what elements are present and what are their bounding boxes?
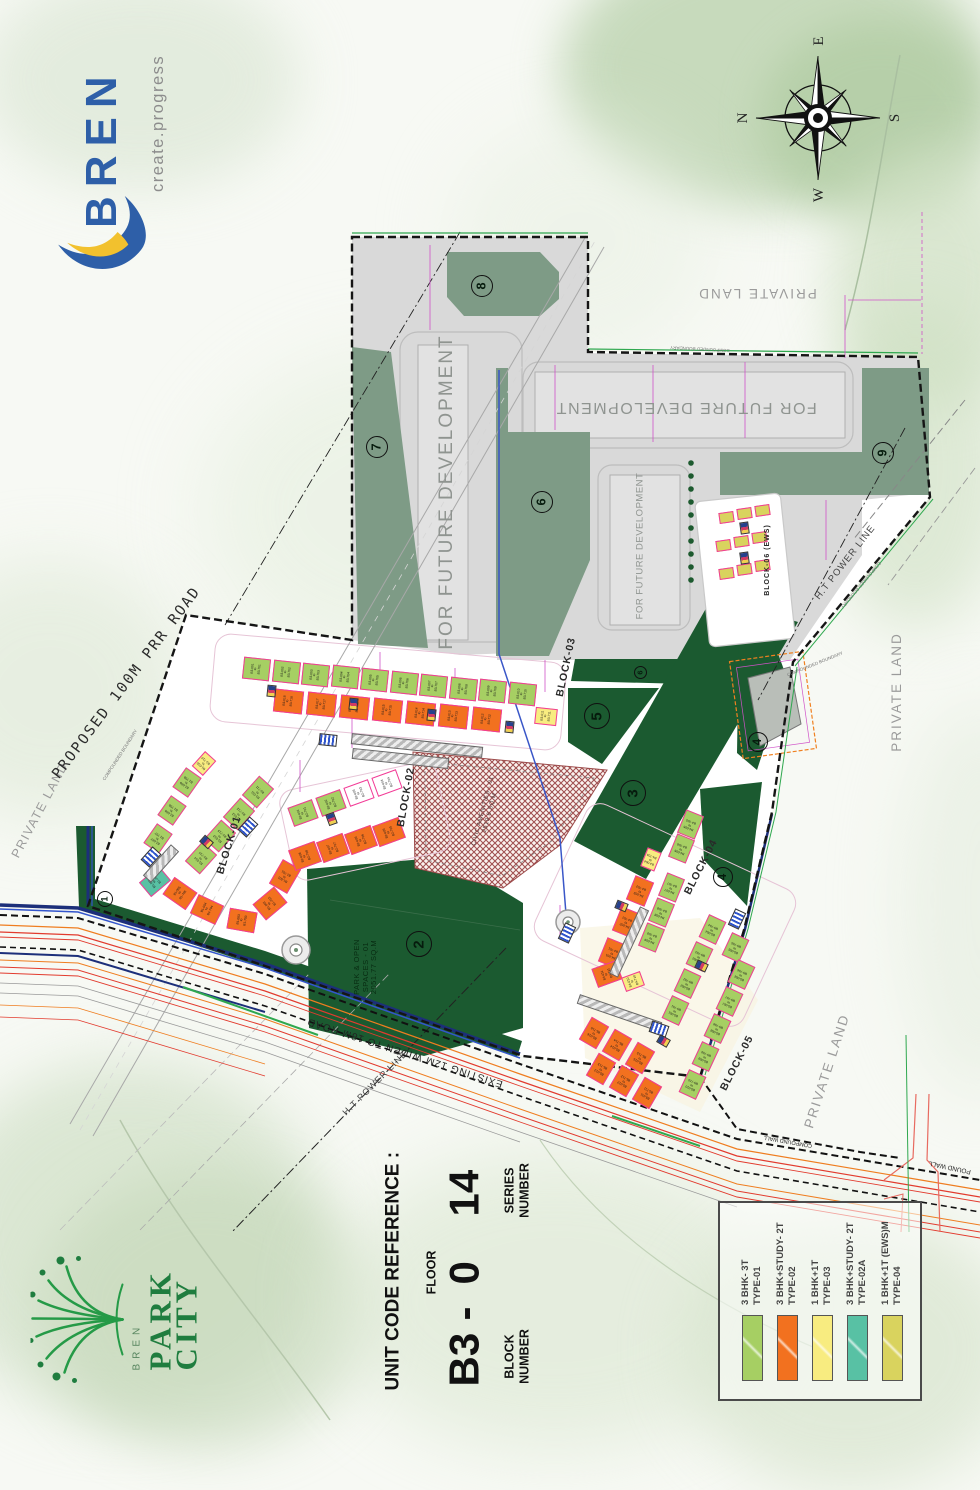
private-land-label: PRIVATE LAND bbox=[697, 285, 817, 301]
compass-n: N bbox=[735, 112, 751, 123]
building: B5-007 to B5-707 bbox=[715, 986, 743, 1017]
building bbox=[736, 507, 752, 520]
building: B4-003 to B4-703 bbox=[626, 875, 654, 907]
legend-swatch bbox=[777, 1315, 798, 1381]
park-city-brand: BREN bbox=[132, 1323, 143, 1371]
building bbox=[733, 535, 749, 548]
area-number: 4 bbox=[713, 867, 733, 887]
future-development-label: FOR FUTURE DEVELOPMENT bbox=[436, 334, 458, 649]
building: B5-008 to B5-708 bbox=[703, 1013, 731, 1044]
legend-item: 3 BHK- 3TTYPE-01 bbox=[740, 1260, 764, 1381]
series-value: 14 bbox=[441, 1170, 489, 1217]
area-number: 6 bbox=[634, 666, 647, 679]
building: B3-012 to B3-712 bbox=[470, 706, 501, 732]
building: B3-015 to B3-715 bbox=[371, 697, 402, 723]
unit-type-legend: 3 BHK- 3TTYPE-013 BHK+STUDY- 2TTYPE-021 … bbox=[718, 1201, 922, 1401]
building: B2-001 to B2-701 bbox=[287, 799, 318, 827]
building: B3-008 to B3-708 bbox=[448, 677, 477, 702]
future-development-label: FOR FUTURE DEVELOPMENT bbox=[555, 398, 816, 416]
building: B3-001 to B3-701 bbox=[241, 657, 270, 682]
building: B5-005 to B5-705 bbox=[721, 932, 749, 963]
lift-core bbox=[739, 551, 750, 564]
building: B5-002 to B5-702 bbox=[673, 968, 701, 999]
building: B5-010 to B5-710 bbox=[678, 1069, 706, 1100]
legend-swatch bbox=[742, 1315, 763, 1381]
parking-icon bbox=[728, 908, 746, 929]
area-number: 4 bbox=[748, 732, 768, 752]
compass-s: S bbox=[887, 114, 903, 122]
building: B3-011 to B3-711 bbox=[534, 706, 558, 725]
area-number: 3 bbox=[620, 780, 646, 806]
building: B5-006 to B5-706 bbox=[727, 959, 755, 990]
floor-value: 0 bbox=[441, 1261, 489, 1284]
series-number-label: SERIESNUMBER bbox=[503, 1163, 533, 1218]
lift-core bbox=[614, 900, 628, 913]
power-line-label: H.T POWER LINE bbox=[340, 1048, 409, 1117]
bren-logo: BREN create.progress bbox=[45, 30, 185, 280]
legend-swatch bbox=[812, 1315, 833, 1381]
private-land-label: PRIVATE LAND bbox=[801, 1012, 853, 1130]
legend-label: 3 BHK+STUDY- 2TTYPE-02A bbox=[845, 1222, 869, 1305]
code-dash: - bbox=[441, 1307, 489, 1321]
building: B4-004 to B4-704 bbox=[640, 847, 661, 871]
block-number-label: BLOCKNUMBER bbox=[503, 1329, 533, 1384]
building: B3-003 to B3-703 bbox=[300, 663, 329, 688]
road-label: PROPOSED 100M PRR ROAD bbox=[49, 584, 204, 783]
building: B3-002 to B3-702 bbox=[271, 660, 300, 685]
area-number: 1 bbox=[97, 891, 113, 907]
floor-label: FLOOR bbox=[425, 1251, 440, 1295]
building: B5-009 to B5-709 bbox=[691, 1041, 719, 1072]
building: B5-011 to B5-711 bbox=[632, 1077, 662, 1110]
building: B1-003 to B1-703 bbox=[226, 907, 257, 933]
area-number: 2 bbox=[406, 931, 432, 957]
building: B1-010 to B1-710 bbox=[192, 751, 217, 776]
block-label: BLOCK-03 bbox=[554, 636, 578, 698]
legend-item: 1 BHK+1T (EWS)MTYPE-04 bbox=[880, 1221, 904, 1381]
block-value: B3 bbox=[441, 1333, 489, 1387]
power-line-label: H.T POWER LINE bbox=[814, 524, 879, 603]
unit-code-title: UNIT CODE REFERENCE : bbox=[383, 1152, 405, 1391]
legend-label: 3 BHK- 3TTYPE-01 bbox=[740, 1260, 764, 1305]
lift-core bbox=[266, 685, 276, 698]
area-number: 5 bbox=[584, 703, 610, 729]
building: B4-007 to B4-707 bbox=[658, 872, 685, 902]
building bbox=[718, 511, 734, 524]
legend-item: 1 BHK+1TTYPE-03 bbox=[810, 1260, 834, 1381]
building: B1-008 to B1-708 bbox=[157, 795, 186, 826]
building: B1-004 to B1-704 bbox=[190, 894, 224, 925]
area-number: 7 bbox=[366, 436, 388, 458]
building: B3-013 to B3-713 bbox=[437, 703, 468, 729]
legend-swatch bbox=[847, 1315, 868, 1381]
park-city-logo: BREN PARK CITY bbox=[31, 1251, 198, 1421]
lift-core bbox=[504, 721, 514, 734]
park-label: PARK & OPENSPACES - 012051.77 SQ.M bbox=[353, 939, 379, 995]
parking-icon bbox=[558, 922, 576, 943]
building bbox=[715, 539, 731, 552]
building: B3-018 to B3-718 bbox=[272, 688, 303, 714]
building bbox=[736, 563, 752, 576]
civic-label: CIVIC AMENITIES - 012519.6 SQ.M bbox=[471, 776, 503, 849]
parking-icon bbox=[318, 733, 337, 747]
compass-e: E bbox=[811, 36, 827, 45]
area-number: 6 bbox=[531, 491, 553, 513]
private-land-label: PRIVATE LAND bbox=[889, 632, 905, 752]
boundary-label: COMPOUNDED BOUNDARY bbox=[786, 650, 843, 677]
future-development-label: FOR FUTURE DEVELOPMENT bbox=[636, 473, 647, 620]
building: B4-010 to B4-710 bbox=[621, 971, 645, 992]
brand-name: BREN bbox=[77, 67, 127, 228]
lift-core bbox=[656, 1034, 671, 1048]
building: B4-008 to B4-708 bbox=[648, 897, 675, 927]
building: B3-010 to B3-710 bbox=[507, 682, 536, 707]
building: B2-004 to B2-704 bbox=[371, 769, 402, 797]
lift-core bbox=[325, 812, 338, 826]
tree-icon bbox=[31, 1255, 126, 1385]
legend-label: 1 BHK+1TTYPE-03 bbox=[810, 1260, 834, 1305]
area-number: 9 bbox=[872, 442, 894, 464]
block-label: BLOCK-05 bbox=[718, 1033, 756, 1092]
unit-code-reference: UNIT CODE REFERENCE : FLOOR B3 - 0 14 BL… bbox=[383, 1151, 558, 1391]
lift-core bbox=[426, 709, 436, 722]
site-plan-sheet: { "header": {"logo_text": "BREN", "tagli… bbox=[0, 0, 980, 1432]
building: B3-017 to B3-717 bbox=[305, 691, 336, 717]
building: B5-004 to B5-704 bbox=[698, 914, 726, 945]
brand-tagline: create.progress bbox=[149, 55, 168, 192]
building: B3-009 to B3-709 bbox=[477, 679, 506, 704]
building bbox=[754, 504, 770, 517]
building: B3-004 to B3-704 bbox=[330, 665, 359, 690]
compass-w: W bbox=[811, 187, 827, 202]
boundary-label: COMPOUNDED BOUNDARY bbox=[670, 345, 730, 353]
park-city-line2: CITY bbox=[169, 1277, 205, 1371]
building: B3-007 to B3-707 bbox=[418, 674, 447, 699]
legend-item: 3 BHK+STUDY- 2TTYPE-02A bbox=[845, 1222, 869, 1381]
wall-label: COMPOUND WALL bbox=[763, 1134, 812, 1149]
legend-label: 1 BHK+1T (EWS)MTYPE-04 bbox=[880, 1221, 904, 1305]
wall-label: POUND WALL bbox=[928, 1159, 971, 1175]
building bbox=[718, 567, 734, 580]
boundary-label: COMPOUNDED BOUNDARY bbox=[102, 729, 139, 782]
legend-swatch bbox=[882, 1315, 903, 1381]
building: B3-005 to B3-705 bbox=[359, 668, 388, 693]
compass-rose: N E S W bbox=[733, 33, 903, 203]
building: B3-006 to B3-706 bbox=[389, 671, 418, 696]
area-number: 8 bbox=[471, 275, 493, 297]
legend-label: 3 BHK+STUDY- 2TTYPE-02 bbox=[775, 1222, 799, 1305]
legend-item: 3 BHK+STUDY- 2TTYPE-02 bbox=[775, 1222, 799, 1381]
block-label: BLOCK-06 (EWS) bbox=[764, 524, 772, 596]
lift-core bbox=[739, 521, 750, 534]
building: B2-003 to B2-703 bbox=[343, 779, 374, 807]
lift-core bbox=[348, 698, 358, 711]
building: B5-001 to B5-701 bbox=[661, 995, 689, 1026]
